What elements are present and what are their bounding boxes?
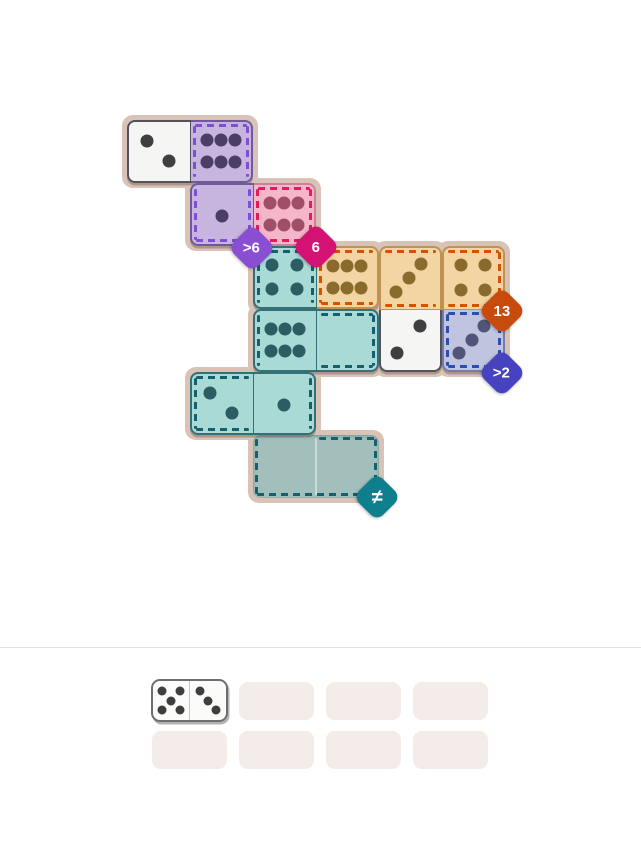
pip — [158, 705, 167, 714]
domino-half-6-pips — [191, 120, 254, 183]
pip — [228, 156, 241, 169]
pip — [204, 696, 213, 705]
pip — [454, 284, 467, 297]
region-border-dash — [321, 302, 374, 305]
region-border-dash — [195, 124, 248, 127]
region-border-dash — [319, 437, 375, 440]
region-border-dash — [255, 439, 258, 494]
pip — [291, 283, 304, 296]
pip — [465, 333, 478, 346]
placed-domino-2-6[interactable] — [127, 120, 253, 183]
pip — [265, 283, 278, 296]
pip — [204, 386, 217, 399]
constraint-badge-label: ≠ — [372, 487, 383, 507]
region-border-dash — [257, 315, 260, 366]
pip — [293, 345, 306, 358]
region-border-dash — [194, 378, 197, 429]
region-border-dash — [321, 365, 374, 368]
pip — [195, 687, 204, 696]
pip — [212, 705, 221, 714]
empty-cells-divider — [315, 438, 317, 495]
tray-slot-4 — [413, 682, 488, 720]
pip — [265, 258, 278, 271]
region-border-dash — [309, 378, 312, 429]
domino-half-1-pips — [254, 372, 317, 435]
pip — [291, 219, 304, 232]
app-screen: >6613>2≠ — [0, 0, 641, 854]
region-border-dash — [321, 313, 374, 316]
tray-slot-8 — [413, 731, 488, 769]
constraint-badge-label: >6 — [243, 240, 260, 255]
domino-half-0-pips — [317, 309, 380, 372]
constraint-badge-label: 13 — [494, 304, 511, 319]
pip — [200, 156, 213, 169]
pip — [214, 134, 227, 147]
domino-half-2-pips — [190, 372, 254, 435]
domino-half-3-pips — [379, 246, 442, 310]
domino-tray — [0, 648, 641, 854]
region-border-dash — [193, 126, 196, 177]
pip — [354, 260, 367, 273]
placed-domino-6-0[interactable] — [253, 309, 379, 372]
region-border-dash — [385, 304, 436, 307]
constraint-badge-label: >2 — [493, 365, 510, 380]
tray-slot-7 — [326, 731, 401, 769]
domino-half-2-pips — [379, 310, 442, 373]
pip — [277, 398, 290, 411]
pip — [265, 345, 278, 358]
pip — [293, 323, 306, 336]
pip — [200, 134, 213, 147]
pip — [413, 320, 426, 333]
pip — [277, 219, 290, 232]
tray-half-5-pips — [153, 681, 190, 720]
pip — [279, 345, 292, 358]
pip — [167, 696, 176, 705]
pip — [277, 197, 290, 210]
region-border-dash — [194, 189, 197, 240]
pip — [340, 282, 353, 295]
pip — [453, 347, 466, 360]
pip — [479, 284, 492, 297]
pip — [265, 323, 278, 336]
pip — [326, 282, 339, 295]
puzzle-board: >6613>2≠ — [0, 0, 641, 647]
pip — [263, 197, 276, 210]
pip — [291, 258, 304, 271]
pip — [228, 134, 241, 147]
region-border-dash — [446, 314, 449, 367]
pip — [225, 406, 238, 419]
tray-slot-6 — [239, 731, 314, 769]
pip — [175, 687, 184, 696]
region-border-dash — [196, 376, 249, 379]
tray-half-3-pips — [190, 681, 226, 720]
pip — [162, 154, 175, 167]
region-border-dash — [385, 250, 436, 253]
region-border-dash — [448, 250, 499, 253]
pip — [214, 156, 227, 169]
pip — [279, 323, 292, 336]
tray-slot-3 — [326, 682, 401, 720]
pip — [291, 197, 304, 210]
region-border-dash — [372, 315, 375, 366]
domino-half-2-pips — [127, 120, 191, 183]
pip — [216, 209, 229, 222]
region-border-dash — [196, 428, 249, 431]
placed-domino-2-1[interactable] — [190, 372, 316, 435]
placed-domino-3-2[interactable] — [379, 246, 442, 372]
pip — [141, 134, 154, 147]
pip — [340, 260, 353, 273]
constraint-badge-label: 6 — [312, 240, 320, 255]
pip — [263, 219, 276, 232]
domino-half-6-pips — [253, 309, 317, 372]
pip — [402, 272, 415, 285]
pip — [390, 285, 403, 298]
pip — [390, 347, 403, 360]
pip — [479, 258, 492, 271]
pip — [326, 260, 339, 273]
pip — [175, 705, 184, 714]
pip — [454, 258, 467, 271]
pip — [414, 258, 427, 271]
tray-slot-2 — [239, 682, 314, 720]
tray-slot-5 — [152, 731, 227, 769]
pip — [158, 687, 167, 696]
pip — [354, 282, 367, 295]
region-border-dash — [258, 187, 311, 190]
region-border-dash — [246, 126, 249, 177]
tray-domino-5-3[interactable] — [151, 679, 228, 722]
